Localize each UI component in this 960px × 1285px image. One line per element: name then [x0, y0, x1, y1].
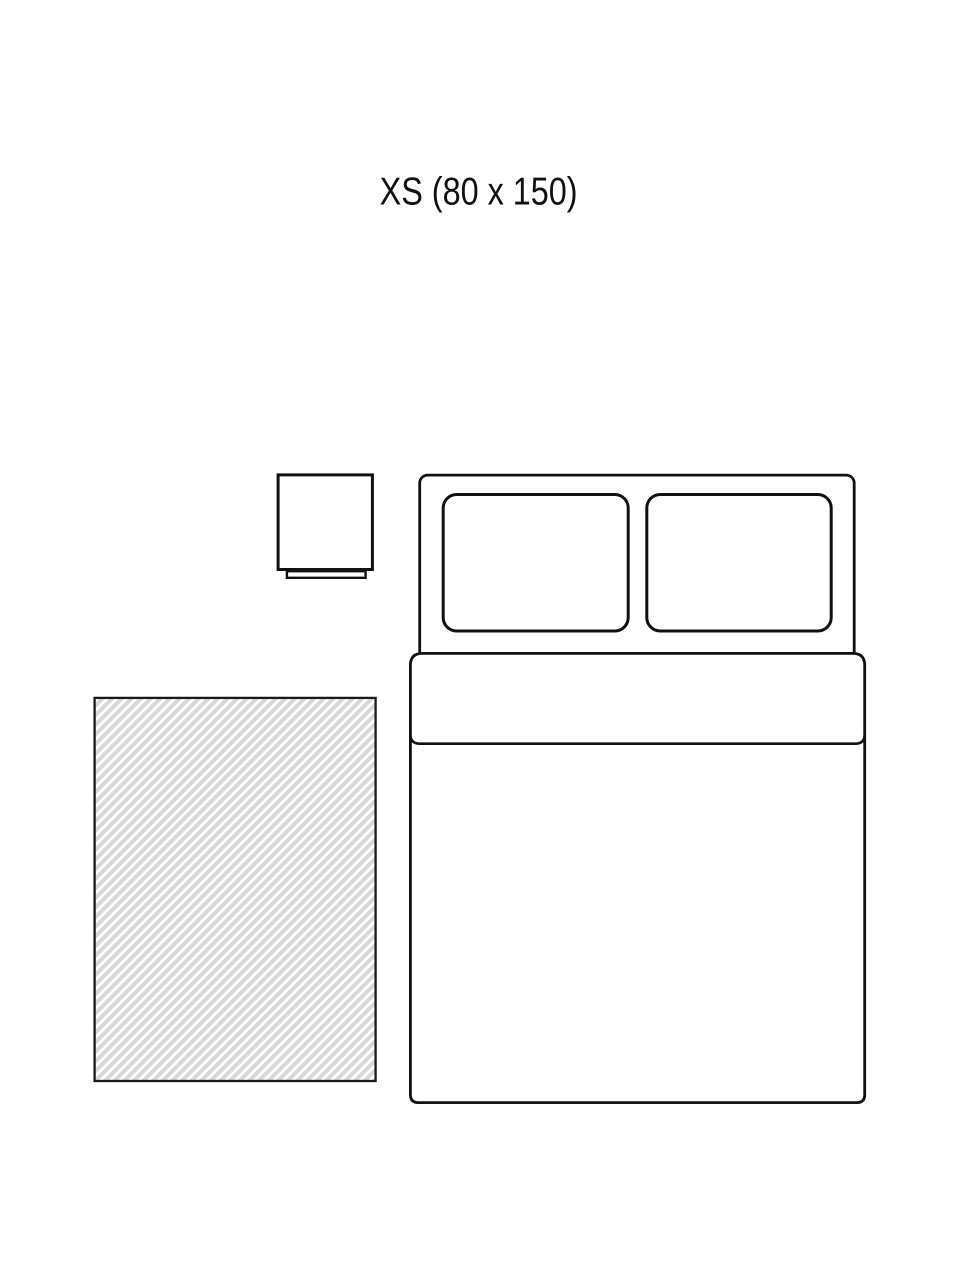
- svg-text:XS (80 x 150): XS (80 x 150): [380, 170, 578, 213]
